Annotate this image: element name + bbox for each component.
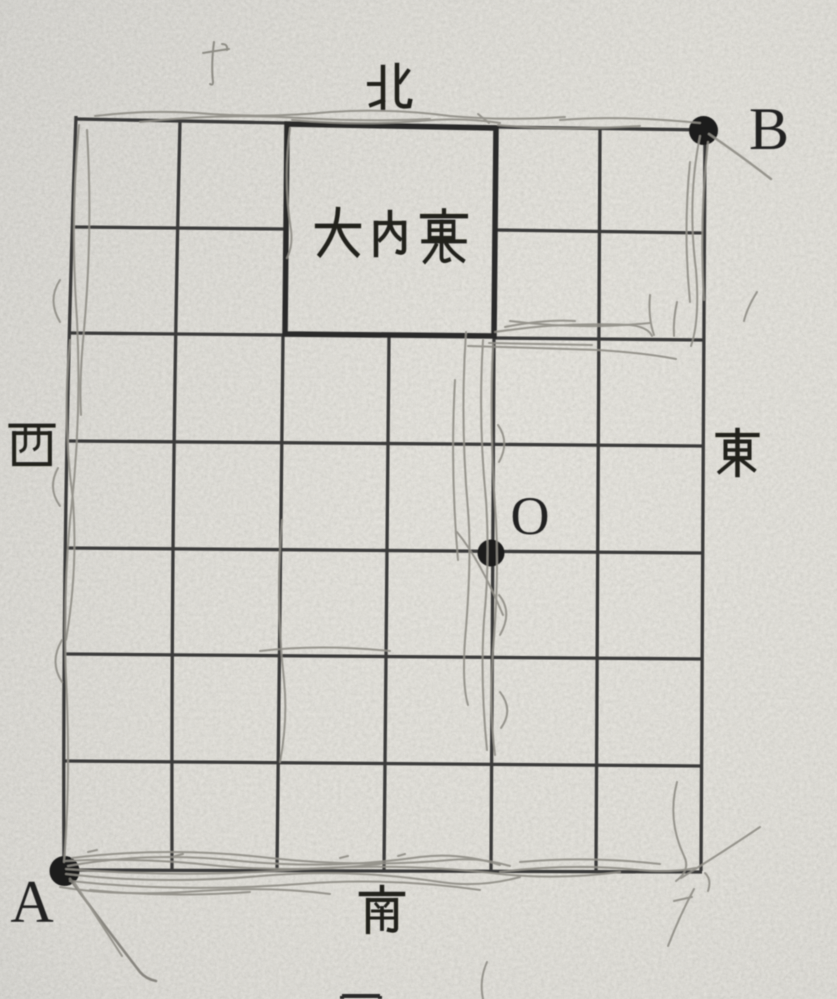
svg-text:A: A bbox=[10, 869, 53, 935]
svg-text:O: O bbox=[511, 486, 550, 546]
svg-text:B: B bbox=[749, 96, 789, 162]
